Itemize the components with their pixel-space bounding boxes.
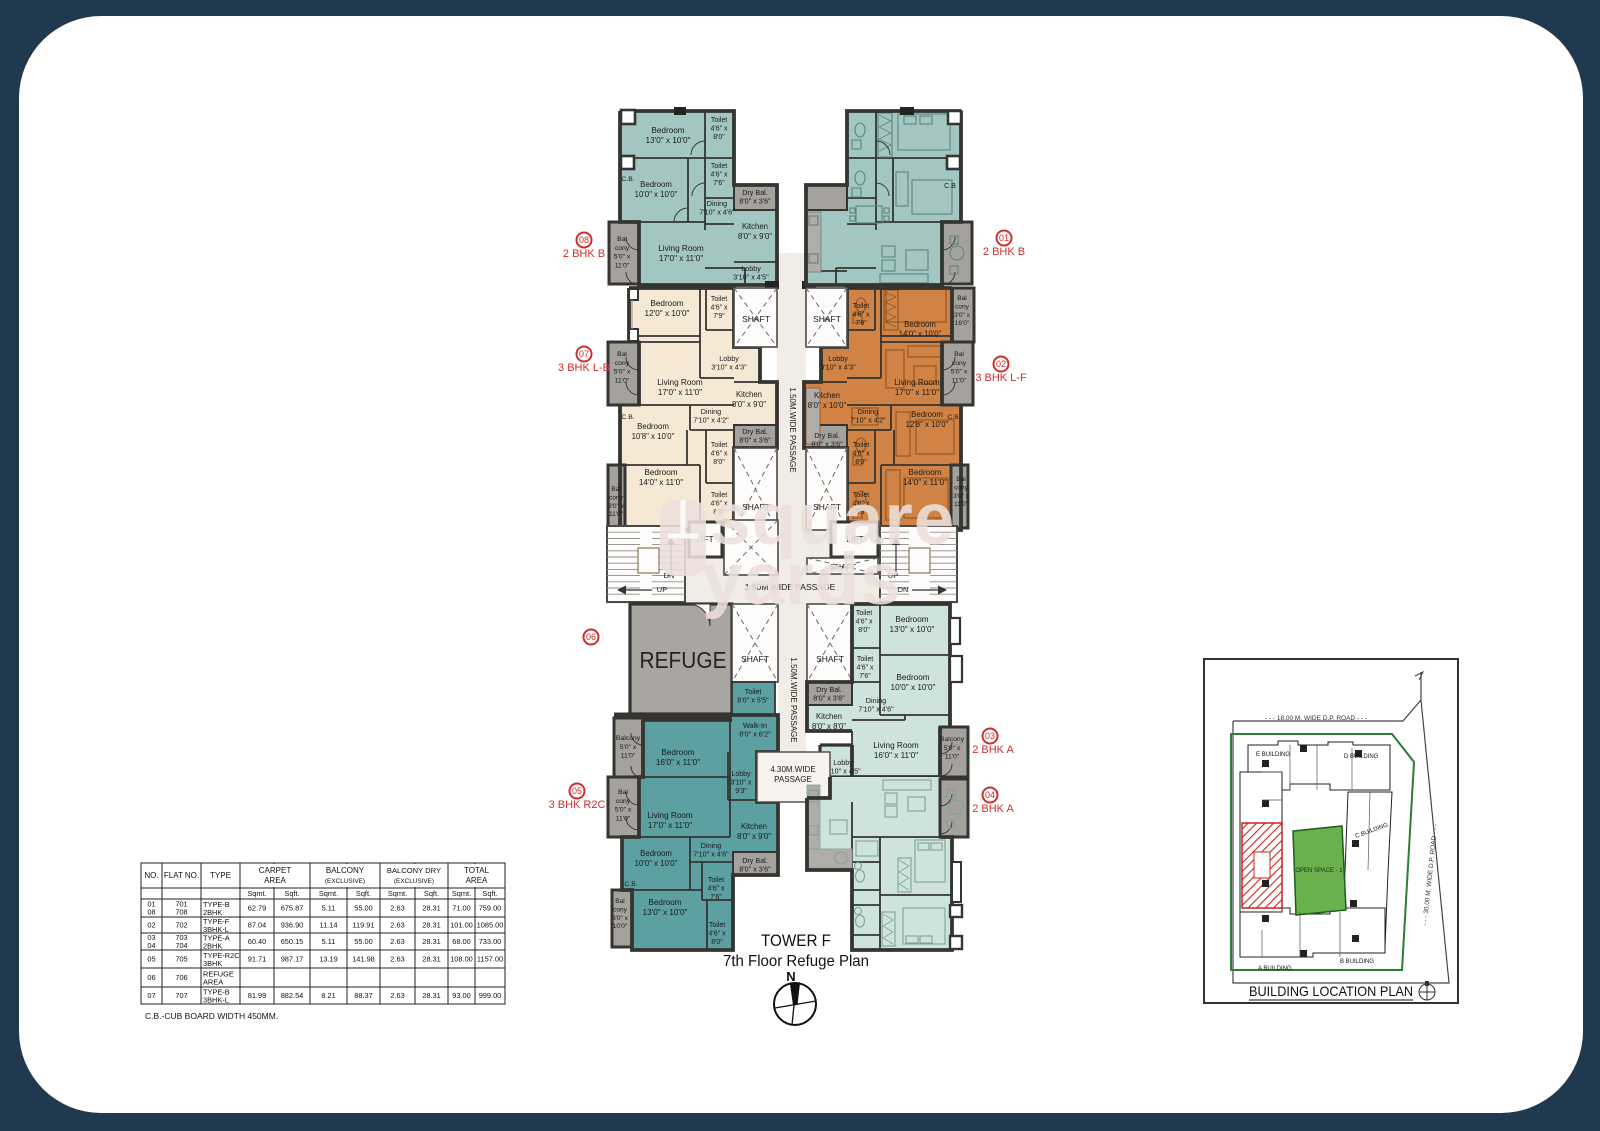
svg-text:Sqft.: Sqft.: [424, 889, 439, 898]
svg-text:TYPE-B3BHK-L: TYPE-B3BHK-L: [203, 988, 230, 1005]
svg-text:Kitchen8'0" x 9'0": Kitchen8'0" x 9'0": [737, 822, 771, 841]
svg-text:7th Floor Refuge Plan: 7th Floor Refuge Plan: [723, 953, 869, 970]
svg-text:N: N: [786, 969, 795, 984]
svg-text:Bedroom12'0" x 10'0": Bedroom12'0" x 10'0": [645, 299, 690, 318]
svg-text:08: 08: [579, 235, 589, 245]
svg-text:Bedroom13'0" x 10'0": Bedroom13'0" x 10'0": [643, 898, 688, 917]
svg-text:28.31: 28.31: [422, 904, 441, 913]
svg-text:CARPET: CARPET: [259, 866, 292, 875]
svg-text:81.99: 81.99: [248, 991, 267, 1000]
svg-text:Kitchen8'0" x 8'0": Kitchen8'0" x 8'0": [812, 712, 846, 731]
svg-text:01: 01: [999, 233, 1009, 243]
svg-text:TOWER F: TOWER F: [761, 931, 831, 950]
svg-text:UP: UP: [657, 585, 667, 594]
svg-text:Sqft.: Sqft.: [482, 889, 497, 898]
svg-text:Dry Bal.8'0" x 3'6": Dry Bal.8'0" x 3'6": [739, 856, 771, 874]
svg-text:A BUILDING: A BUILDING: [1258, 966, 1292, 972]
svg-text:C.B.: C.B.: [621, 414, 634, 421]
svg-text:Bedroom10'8" x 10'0": Bedroom10'8" x 10'0": [632, 422, 675, 441]
svg-text:2.63: 2.63: [390, 937, 404, 946]
svg-text:62.79: 62.79: [248, 904, 267, 913]
svg-text:Bedroom10'0" x 10'0": Bedroom10'0" x 10'0": [891, 673, 936, 692]
svg-text:759.00: 759.00: [479, 904, 502, 913]
svg-text:3 BHK R2C: 3 BHK R2C: [549, 799, 606, 811]
svg-text:28.31: 28.31: [422, 991, 441, 1000]
svg-text:TYPE: TYPE: [210, 871, 231, 880]
svg-text:08: 08: [147, 908, 155, 917]
svg-text:Bedroom12'8" x 10'0": Bedroom12'8" x 10'0": [906, 410, 949, 429]
svg-text:C.B.-CUB BOARD WIDTH 450MM.: C.B.-CUB BOARD WIDTH 450MM.: [145, 1011, 278, 1021]
svg-text:1.50M.WIDE PASSAGE: 1.50M.WIDE PASSAGE: [789, 657, 798, 742]
svg-text:55.00: 55.00: [354, 937, 373, 946]
svg-text:707: 707: [175, 991, 187, 1000]
svg-text:2 BHK A: 2 BHK A: [972, 744, 1014, 756]
svg-text:5.11: 5.11: [322, 937, 336, 946]
svg-text:60.40: 60.40: [248, 937, 267, 946]
svg-text:03: 03: [985, 731, 995, 741]
svg-text:Kitchen8'0" x 9'0": Kitchen8'0" x 9'0": [732, 390, 766, 409]
svg-text:FLAT NO.: FLAT NO.: [164, 871, 199, 880]
svg-text:2.63: 2.63: [390, 991, 404, 1000]
svg-text:Sqmt.: Sqmt.: [388, 889, 407, 898]
svg-text:108.00: 108.00: [450, 955, 473, 964]
svg-text:(EXCLUSIVE): (EXCLUSIVE): [394, 878, 434, 885]
svg-text:Sqmt.: Sqmt.: [452, 889, 471, 898]
svg-text:D BUILDING: D BUILDING: [1344, 754, 1379, 760]
svg-text:702: 702: [175, 921, 187, 930]
svg-text:BUILDING LOCATION PLAN: BUILDING LOCATION PLAN: [1249, 983, 1413, 999]
svg-text:2 BHK B: 2 BHK B: [983, 246, 1025, 258]
svg-text:2 BHK A: 2 BHK A: [972, 803, 1014, 815]
svg-text:1157.00: 1157.00: [477, 955, 503, 964]
svg-text:yards: yards: [702, 539, 902, 620]
svg-text:Bedroom14'0" x 11'0": Bedroom14'0" x 11'0": [639, 468, 683, 487]
svg-text:87.04: 87.04: [248, 921, 267, 930]
svg-text:Bedroom10'0" x 10'0": Bedroom10'0" x 10'0": [635, 849, 678, 868]
svg-text:- - - 18.00 M. WIDE D.P. ROAD: - - - 18.00 M. WIDE D.P. ROAD - - -: [1265, 715, 1367, 722]
svg-text:SHAFT: SHAFT: [741, 654, 769, 664]
svg-text:AREA: AREA: [466, 876, 488, 885]
svg-text:733.00: 733.00: [479, 937, 502, 946]
svg-text:119.91: 119.91: [352, 921, 374, 930]
svg-text:28.31: 28.31: [422, 955, 441, 964]
svg-text:02: 02: [996, 359, 1006, 369]
svg-text:Sqft.: Sqft.: [356, 889, 371, 898]
svg-text:04: 04: [147, 941, 155, 950]
svg-text:C.B.: C.B.: [624, 881, 637, 888]
svg-text:882.54: 882.54: [281, 991, 304, 1000]
svg-text:Bedroom13'0" x 10'0": Bedroom13'0" x 10'0": [646, 126, 691, 145]
svg-text:06: 06: [147, 973, 155, 982]
svg-text:SHAFT: SHAFT: [816, 654, 844, 664]
svg-text:68.00: 68.00: [452, 937, 471, 946]
svg-text:2.63: 2.63: [390, 955, 404, 964]
svg-text:(EXCLUSIVE): (EXCLUSIVE): [325, 878, 365, 885]
svg-text:Sqmt.: Sqmt.: [319, 889, 338, 898]
svg-text:2.63: 2.63: [390, 921, 404, 930]
svg-text:2.63: 2.63: [390, 904, 404, 913]
svg-text:4.30M.WIDEPASSAGE: 4.30M.WIDEPASSAGE: [770, 765, 815, 784]
svg-text:987.17: 987.17: [281, 955, 304, 964]
svg-text:Living Room16'0" x 11'0": Living Room16'0" x 11'0": [873, 741, 919, 760]
svg-text:5.11: 5.11: [322, 904, 336, 913]
svg-text:708: 708: [175, 908, 187, 917]
svg-text:13.19: 13.19: [319, 955, 338, 964]
svg-text:07: 07: [147, 991, 155, 1000]
svg-text:2 BHK B: 2 BHK B: [563, 248, 605, 260]
svg-text:Walk-In8'0" x 6'2": Walk-In8'0" x 6'2": [739, 721, 771, 739]
svg-text:1.50M.WIDE PASSAGE: 1.50M.WIDE PASSAGE: [788, 387, 797, 472]
svg-text:Bedroom16'0" x 11'0": Bedroom16'0" x 11'0": [656, 748, 700, 767]
svg-text:REFUGE: REFUGE: [640, 647, 727, 673]
svg-text:TOTAL: TOTAL: [464, 866, 490, 875]
svg-text:91.71: 91.71: [248, 955, 267, 964]
svg-text:Living Room17'0" x 11'0": Living Room17'0" x 11'0": [658, 244, 704, 263]
svg-text:NO.: NO.: [144, 871, 158, 880]
svg-text:11.14: 11.14: [320, 921, 338, 930]
svg-text:Bedroom14'0" x 10'0": Bedroom14'0" x 10'0": [899, 320, 942, 338]
svg-text:Bedroom10'0" x 10'0": Bedroom10'0" x 10'0": [635, 180, 678, 199]
svg-text:BALCONY: BALCONY: [326, 866, 365, 875]
svg-text:3 BHK L-F: 3 BHK L-F: [975, 372, 1027, 384]
svg-text:Dry Bal.8'0" x 3'6": Dry Bal.8'0" x 3'6": [739, 188, 771, 206]
svg-text:93.00: 93.00: [452, 991, 471, 1000]
svg-text:101.00: 101.00: [450, 921, 473, 930]
svg-text:Dry Bal.8'0" x 3'6": Dry Bal.8'0" x 3'6": [739, 427, 771, 445]
svg-text:28.31: 28.31: [422, 921, 441, 930]
svg-text:28.31: 28.31: [422, 937, 441, 946]
svg-text:C.B: C.B: [944, 183, 956, 190]
svg-text:04: 04: [985, 790, 995, 800]
svg-text:Living Room17'0" x 11'0": Living Room17'0" x 11'0": [657, 378, 703, 397]
svg-text:OPEN SPACE - 1: OPEN SPACE - 1: [1295, 868, 1343, 874]
svg-text:1085.00: 1085.00: [477, 921, 504, 930]
svg-text:AREA: AREA: [264, 876, 286, 885]
svg-text:141.98: 141.98: [352, 955, 375, 964]
svg-text:BALCONY DRY: BALCONY DRY: [387, 866, 441, 875]
svg-text:B BUILDING: B BUILDING: [1340, 959, 1374, 965]
svg-text:675.87: 675.87: [281, 904, 304, 913]
svg-text:SHAFT: SHAFT: [742, 314, 770, 324]
svg-text:3 BHK L-B: 3 BHK L-B: [558, 362, 610, 374]
svg-text:Living Room17'0" x 11'0": Living Room17'0" x 11'0": [647, 811, 693, 830]
svg-text:Sqmt.: Sqmt.: [247, 889, 266, 898]
svg-text:936.90: 936.90: [281, 921, 304, 930]
svg-text:71.00: 71.00: [452, 904, 471, 913]
svg-text:05: 05: [147, 955, 155, 964]
svg-text:Living Room17'0" x 11'0": Living Room17'0" x 11'0": [894, 378, 940, 397]
svg-text:05: 05: [572, 786, 582, 796]
svg-text:07: 07: [579, 349, 589, 359]
svg-text:Sqft.: Sqft.: [284, 889, 299, 898]
svg-text:88.37: 88.37: [354, 991, 373, 1000]
svg-text:E BUILDING: E BUILDING: [1256, 752, 1290, 758]
svg-text:06: 06: [586, 632, 596, 642]
svg-text:SHAFT: SHAFT: [813, 314, 841, 324]
svg-text:706: 706: [175, 973, 187, 982]
svg-text:TYPE-F3BHK-L: TYPE-F3BHK-L: [203, 917, 230, 934]
svg-text:650.15: 650.15: [281, 937, 304, 946]
svg-text:C.B: C.B: [947, 414, 959, 421]
svg-text:999.00: 999.00: [479, 991, 502, 1000]
svg-text:704: 704: [175, 941, 187, 950]
svg-text:C.B.: C.B.: [621, 176, 634, 183]
svg-text:Dry Bal.8'0" x 3'6": Dry Bal.8'0" x 3'6": [811, 431, 843, 449]
svg-text:55.00: 55.00: [354, 904, 373, 913]
svg-text:Kitchen8'0" x 9'0": Kitchen8'0" x 9'0": [738, 222, 772, 241]
svg-text:8.21: 8.21: [321, 991, 335, 1000]
svg-text:705: 705: [175, 955, 187, 964]
svg-text:Dry Bal.8'0" x 3'6": Dry Bal.8'0" x 3'6": [813, 685, 845, 703]
svg-text:02: 02: [147, 921, 155, 930]
